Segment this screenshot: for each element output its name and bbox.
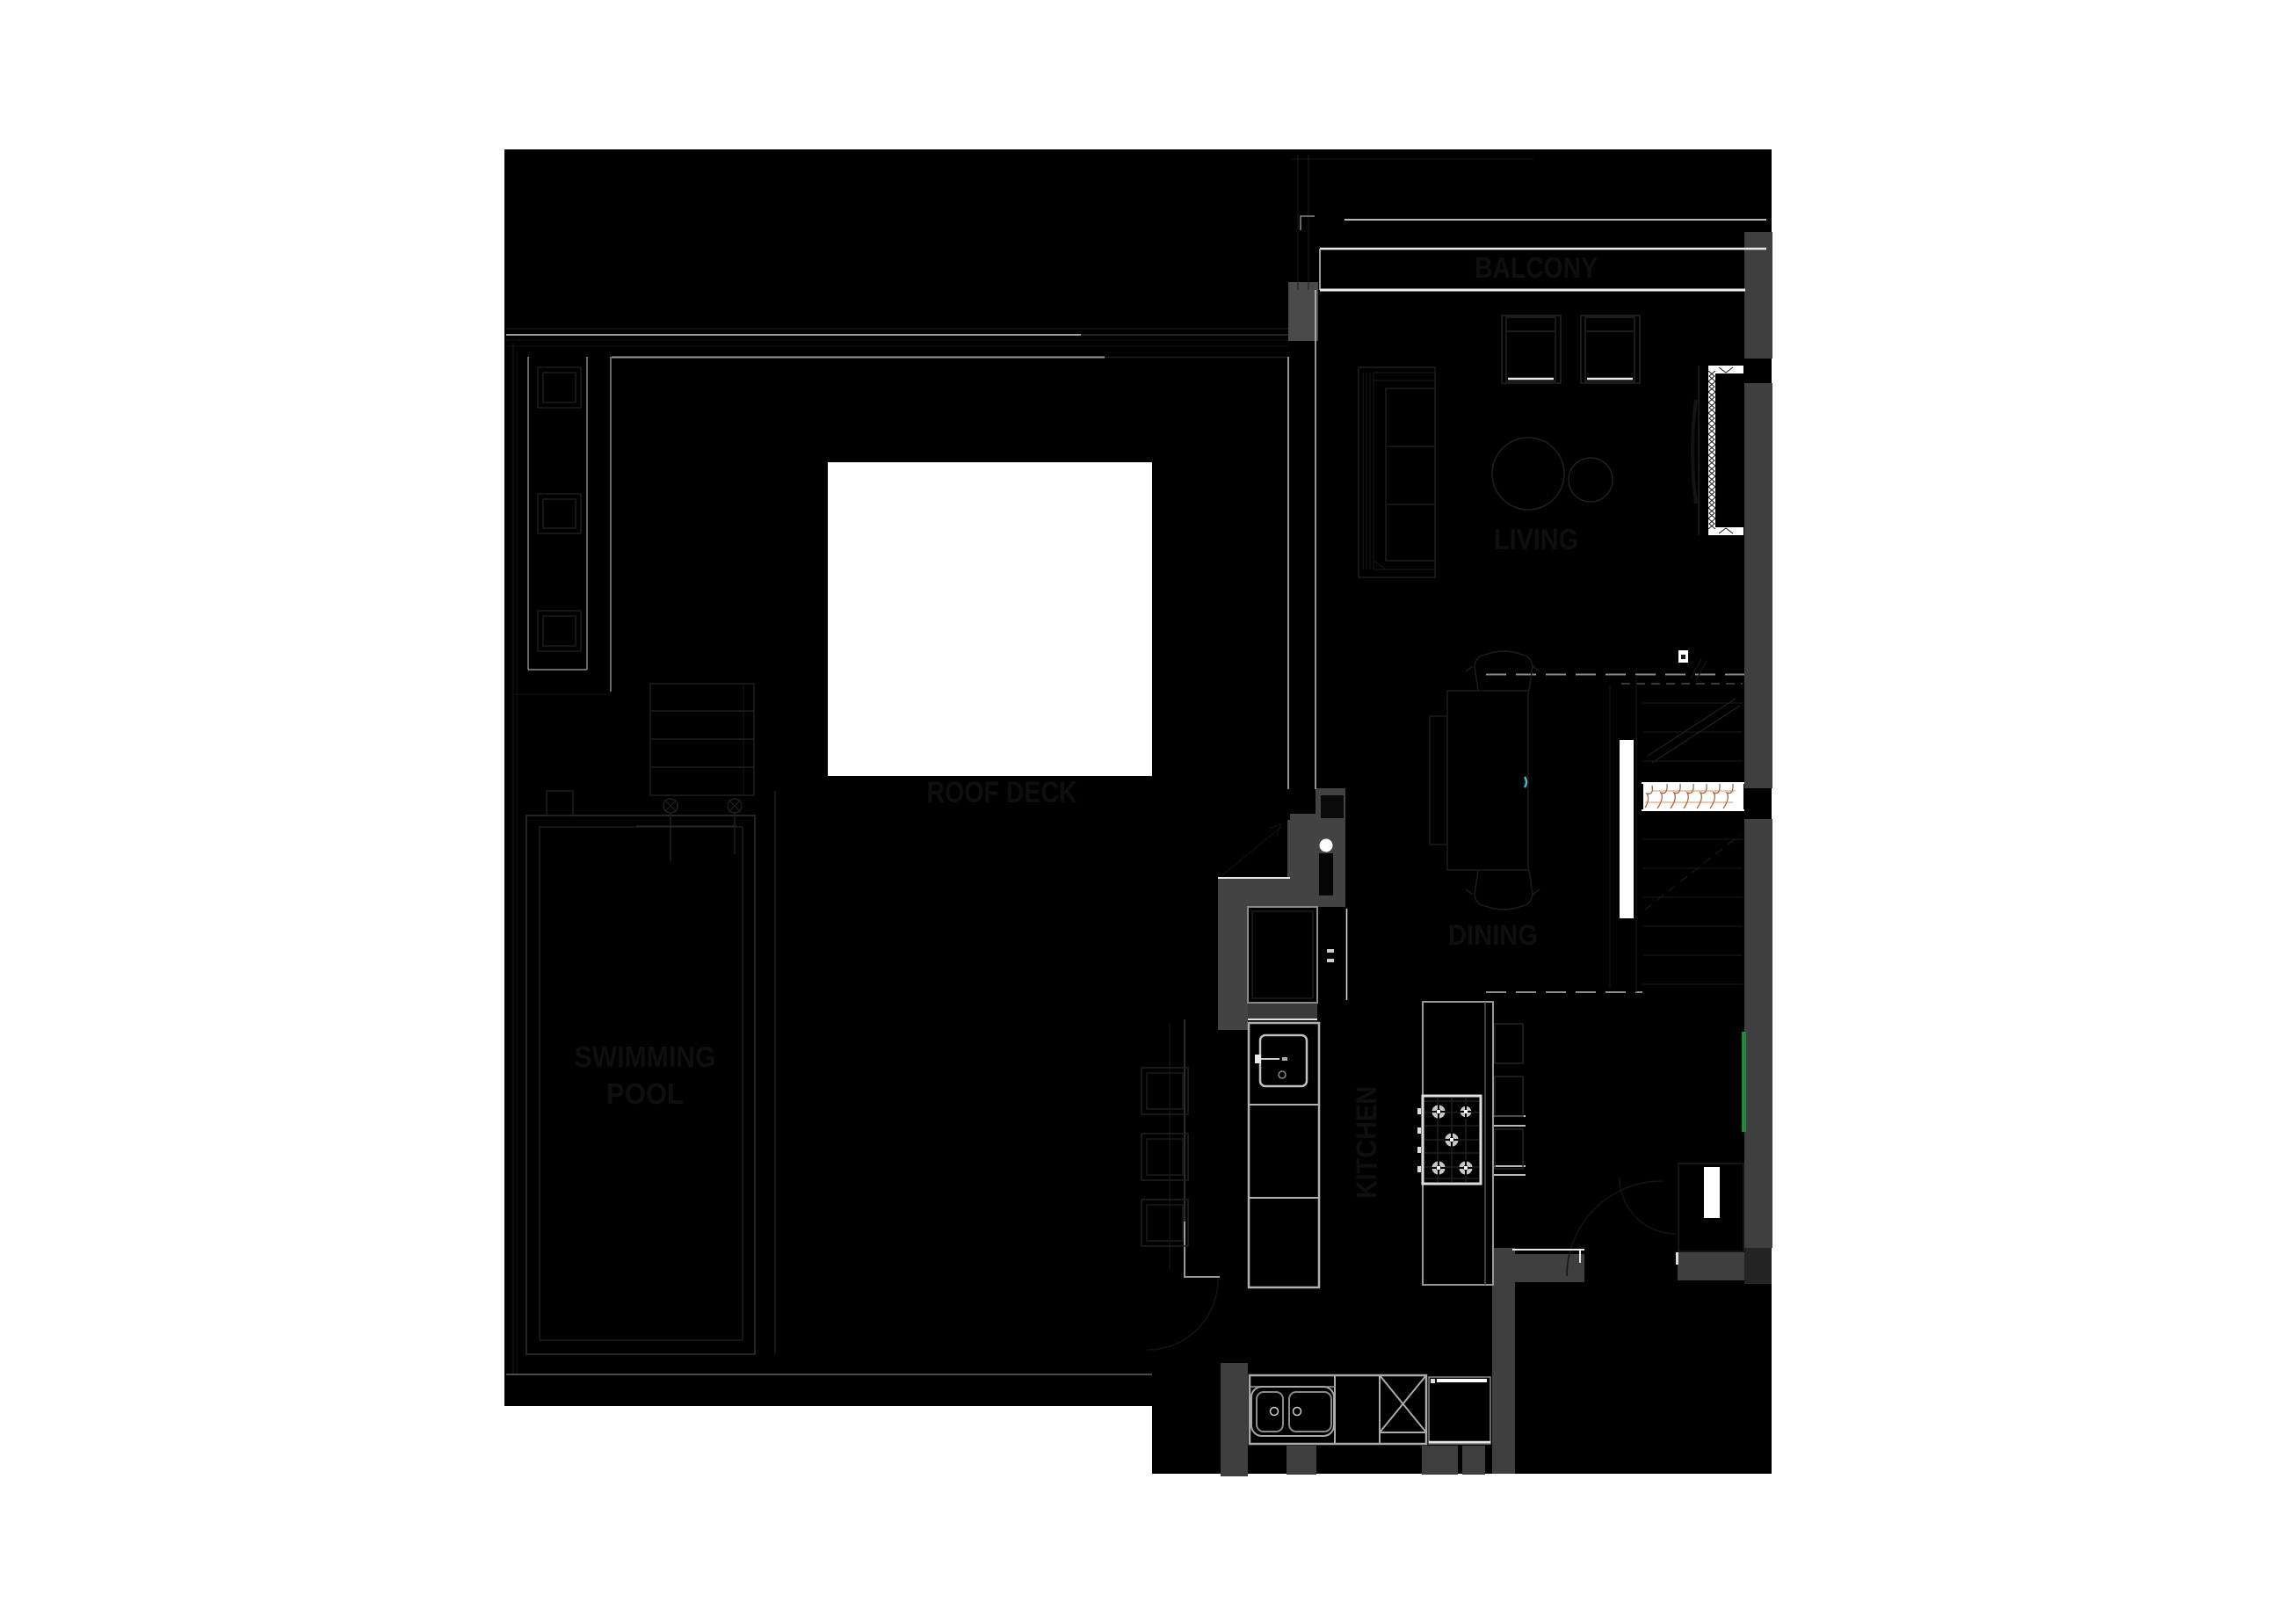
svg-text:BALCONY: BALCONY — [1475, 251, 1598, 284]
svg-text:ROOF DECK: ROOF DECK — [927, 776, 1077, 809]
svg-text:SWIMMING: SWIMMING — [575, 1040, 716, 1073]
svg-text:POOL: POOL — [606, 1077, 684, 1110]
svg-text:LIVING: LIVING — [1494, 523, 1578, 555]
svg-text:KITCHEN: KITCHEN — [1351, 1086, 1382, 1199]
svg-text:DINING: DINING — [1448, 919, 1538, 951]
